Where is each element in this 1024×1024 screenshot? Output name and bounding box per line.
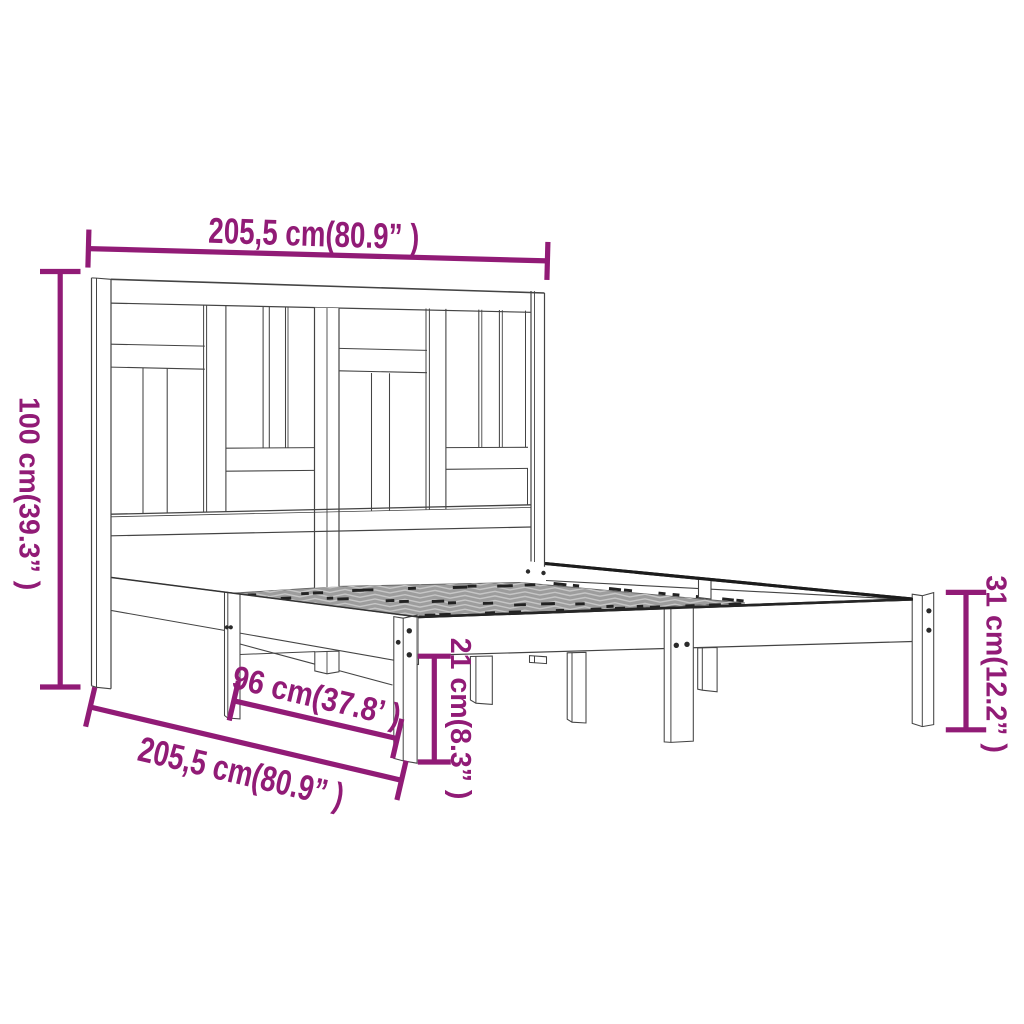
svg-text:21 cm(8.3” ): 21 cm(8.3” ) — [444, 638, 476, 800]
svg-text:31 cm(12.2” ): 31 cm(12.2” ) — [979, 575, 1011, 752]
svg-text:100 cm(39.3” ): 100 cm(39.3” ) — [13, 397, 45, 590]
svg-text:205,5 cm(80.9” ): 205,5 cm(80.9” ) — [208, 210, 420, 258]
